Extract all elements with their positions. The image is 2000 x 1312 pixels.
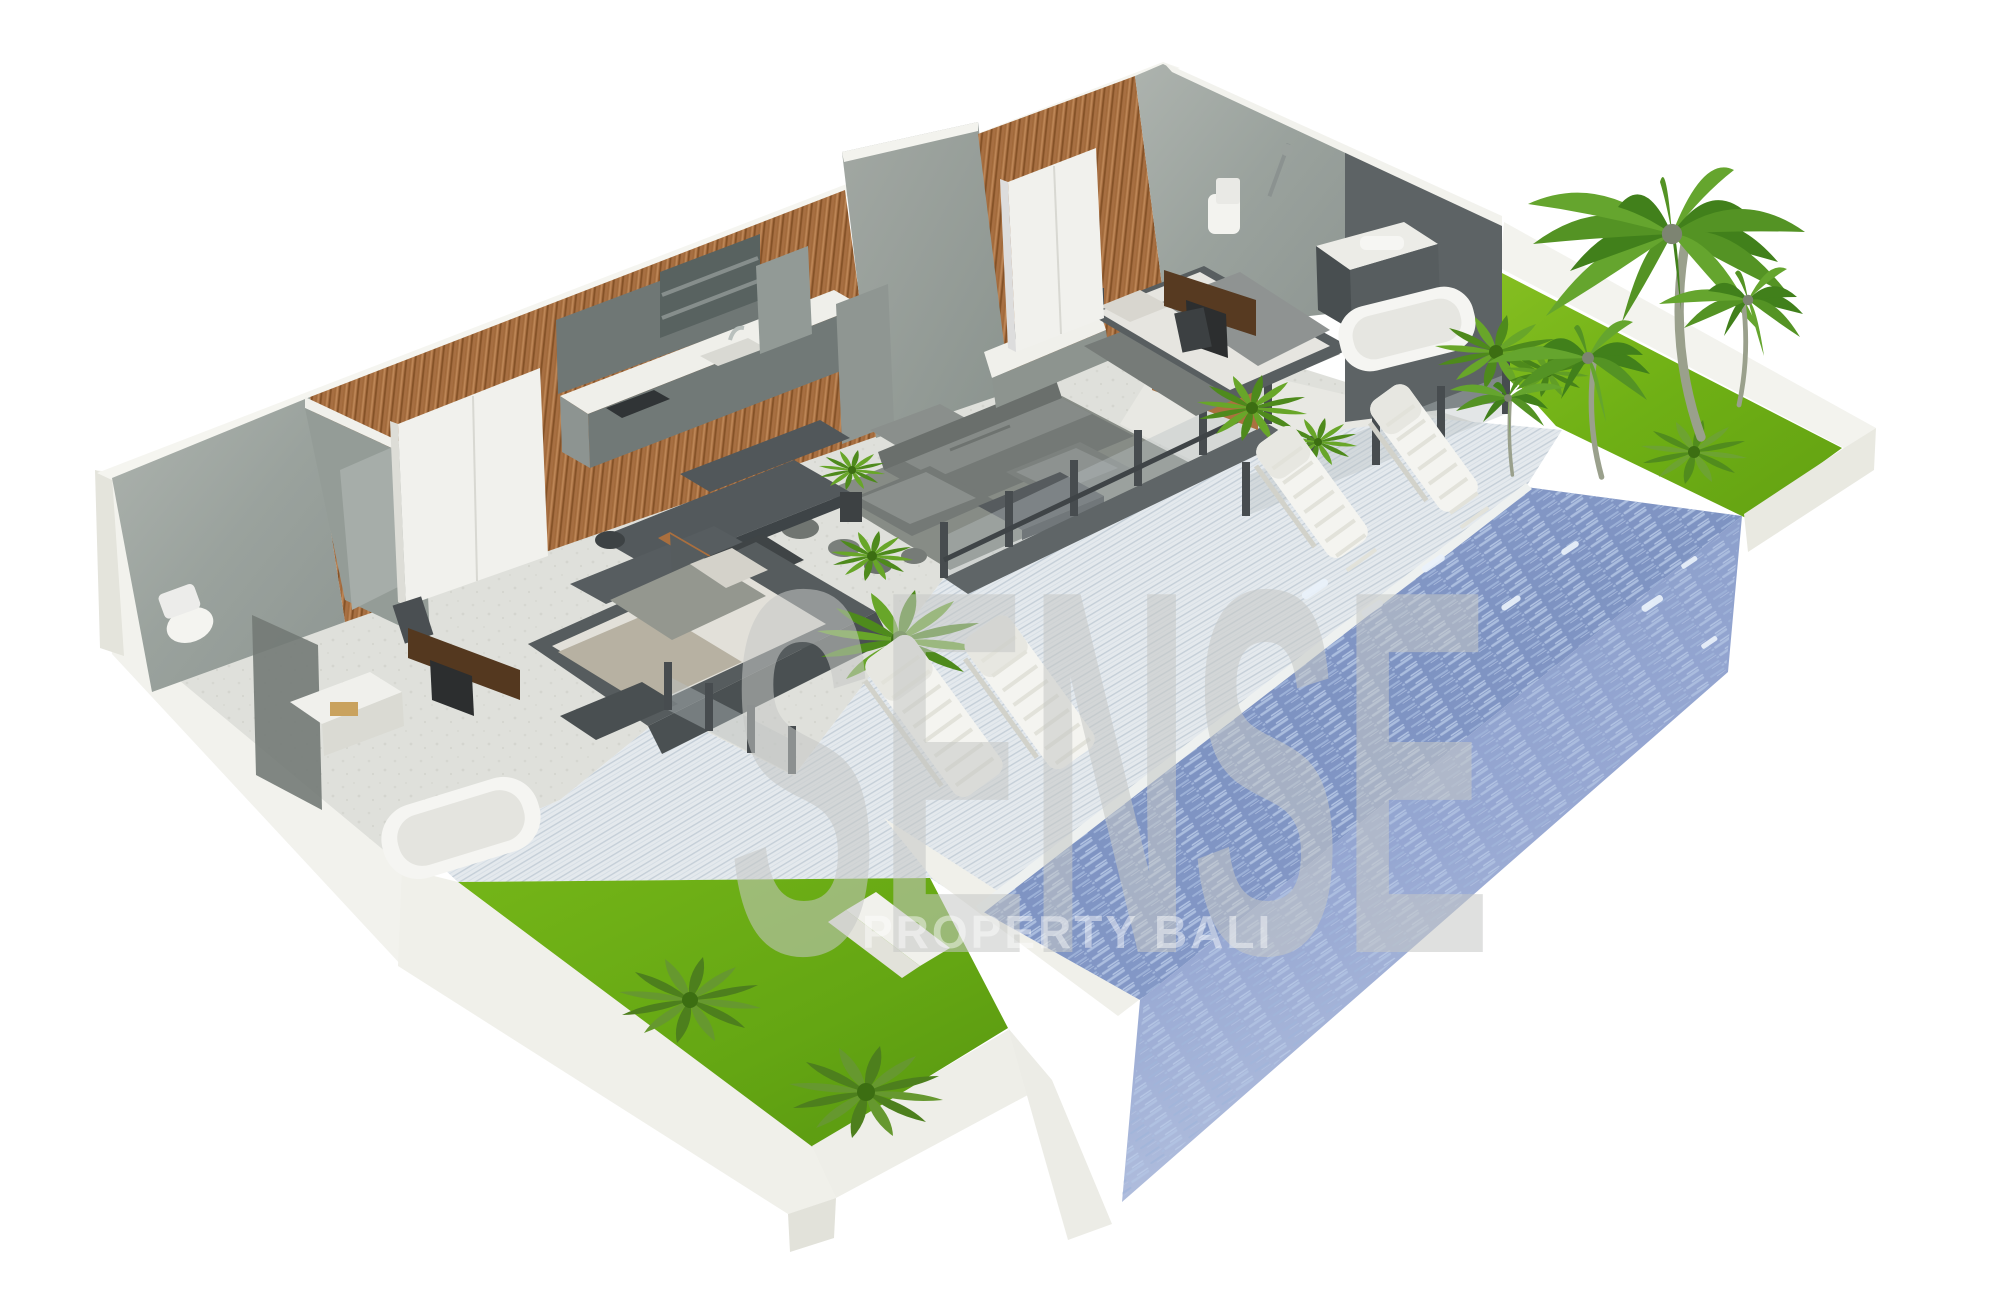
svg-text:PROPERTY BALI: PROPERTY BALI	[862, 906, 1273, 958]
svg-text:SENSE: SENSE	[728, 482, 1492, 1063]
